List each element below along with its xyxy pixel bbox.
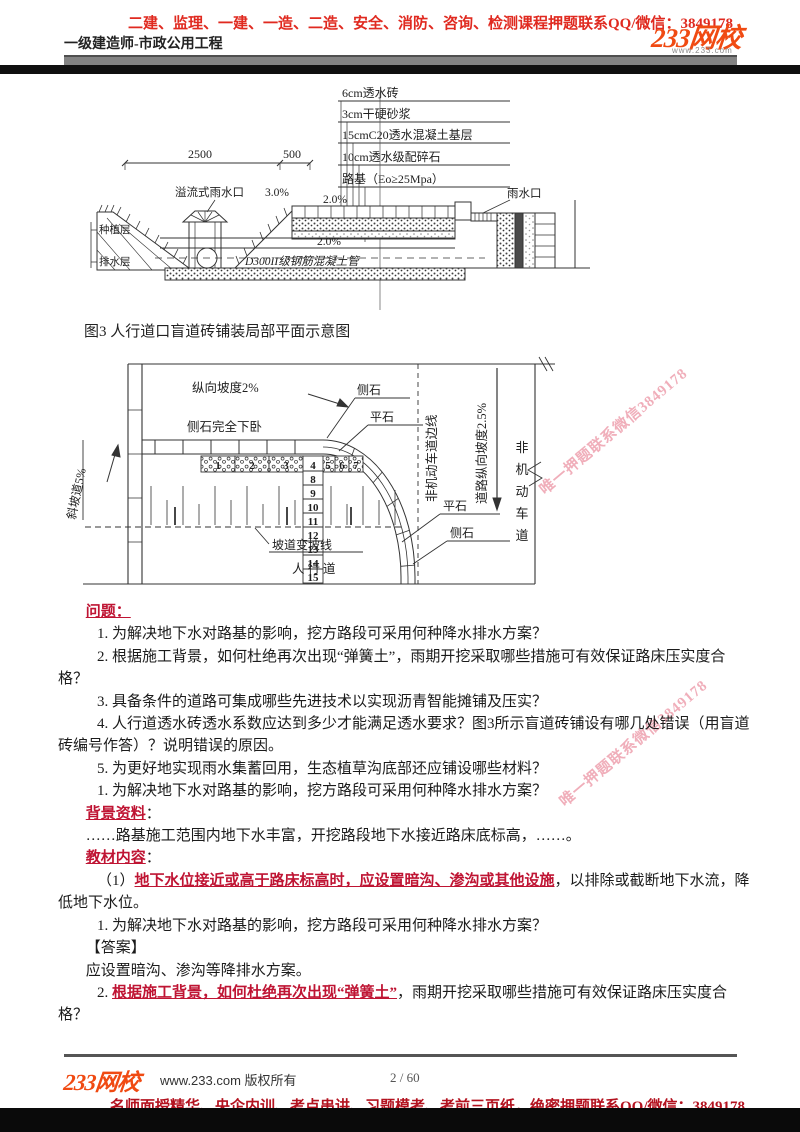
slope-change-label: 坡道变坡线	[272, 537, 332, 552]
curb-top-label: 侧石	[357, 383, 381, 397]
text-run: 低地下水位。	[58, 895, 148, 911]
bike-lane-label: 非机动车道	[515, 440, 528, 543]
flat-bottom-label: 平石	[443, 499, 467, 513]
brick-number: 10	[308, 502, 320, 514]
right-curb-assembly	[455, 200, 590, 268]
text-run: （1）	[97, 873, 135, 889]
text-run: 3. 具备条件的道路可集成哪些先进技术以实现沥青智能摊铺及压实？	[97, 694, 547, 710]
footer-divider	[64, 1054, 737, 1057]
brick-number: 5	[325, 460, 331, 472]
text-run: 格？	[58, 671, 88, 687]
header-promo-text: 二建、监理、一建、一造、二造、安全、消防、咨询、检测课程押题联系QQ/微信：38…	[128, 12, 733, 33]
text-run: 5. 为更好地实现雨水集蓄回用，生态植草沟底部还应铺设哪些材料？	[97, 761, 547, 777]
content-paragraphs: 问题： 1. 为解决地下水对路基的影响，挖方路段可采用何种降水排水方案？2. 根…	[58, 601, 748, 1027]
paragraph: 5. 为更好地实现雨水集蓄回用，生态植草沟底部还应铺设哪些材料？	[58, 758, 748, 780]
sidewalk-label: 人行道	[292, 562, 339, 576]
road-slope-label: 道路纵向坡度2.5%	[474, 403, 489, 504]
slope-2pct-lower: 2.0%	[317, 236, 341, 248]
text-run: 4. 人行道透水砖透水系数应达到多少才能满足透水要求？图3所示盲道砖铺设有哪几处…	[97, 716, 750, 732]
plan-view-diagram: 1 2 3 4 5 6 7 8 9 10 11 12 13 14 15 坡道变坡…	[55, 352, 595, 602]
layer-callout-labels: 6cm透水砖 3cm干硬砂浆 15cmC20透水混凝土基层 10cm透水级配碎石…	[342, 85, 473, 186]
layer-label: 6cm透水砖	[342, 85, 399, 100]
page-number: 2 / 60	[390, 1070, 420, 1086]
cross-section-svg: 6cm透水砖 3cm干硬砂浆 15cmC20透水混凝土基层 10cm透水级配碎石…	[55, 82, 735, 322]
slope-3pct-label: 3.0%	[265, 187, 289, 199]
dim-2500: 2500	[188, 147, 212, 161]
paragraph: 背景资料：	[58, 803, 748, 825]
emphasized-text-run: 问题：	[86, 604, 131, 620]
text-run: ：	[146, 850, 161, 866]
emphasized-text-run: 教材内容	[86, 850, 146, 866]
text-run: ……路基施工范围内地下水丰富，开挖路段地下水接近路床底标高，……。	[86, 828, 581, 844]
text-run: 1. 为解决地下水对路基的影响，挖方路段可采用何种降水排水方案？	[97, 783, 547, 799]
drain-layer-label: 排水层	[99, 255, 131, 268]
brick-number: 4	[310, 460, 316, 472]
brick-number: 11	[308, 516, 318, 528]
paragraph: 格？	[58, 668, 748, 690]
flat-top-label: 平石	[370, 410, 394, 424]
footer-copyright: www.233.com 版权所有	[160, 1070, 297, 1089]
curb-bottom-label: 侧石	[450, 526, 474, 540]
cross-section-diagram: 6cm透水砖 3cm干硬砂浆 15cmC20透水混凝土基层 10cm透水级配碎石…	[55, 82, 735, 322]
paragraph: 【答案】	[58, 937, 748, 959]
header-divider-bar	[64, 55, 737, 65]
text-run: ：	[146, 806, 161, 822]
brick-number: 8	[310, 474, 316, 486]
pipe-label: D300II级钢筋混凝土管	[244, 255, 360, 268]
layer-label: 路基（Eo≥25Mpa）	[342, 171, 444, 186]
paragraph: 2. 根据施工背景，如何杜绝再次出现“弹簧土”，雨期开挖采取哪些措施可有效保证路…	[58, 982, 748, 1004]
text-run: 格？	[58, 1007, 88, 1023]
paragraph: 低地下水位。	[58, 892, 748, 914]
figure-caption: 图3 人行道口盲道砖铺装局部平面示意图	[84, 320, 350, 341]
inlet-leader	[207, 200, 215, 212]
layer-label: 10cm透水级配碎石	[342, 149, 441, 164]
document-page: { "header": { "promo": "二建、监理、一建、一造、二造、安…	[0, 0, 800, 1132]
overflow-inlet-label: 溢流式雨水口	[175, 185, 244, 199]
paragraph: ……路基施工范围内地下水丰富，开挖路段地下水接近路床底标高，……。	[58, 825, 748, 847]
slope-arrow	[308, 394, 348, 407]
layer-label: 3cm干硬砂浆	[342, 106, 411, 121]
brick-number: 3	[283, 460, 289, 472]
paragraph: 应设置暗沟、渗沟等降排水方案。	[58, 960, 748, 982]
paragraph: 教材内容：	[58, 847, 748, 869]
paragraph: 2. 根据施工背景，如何杜绝再次出现“弹簧土”，雨期开挖采取哪些措施可有效保证路…	[58, 646, 748, 668]
text-run: 2.	[97, 985, 112, 1001]
brick-number: 6	[339, 460, 345, 472]
paragraph: 1. 为解决地下水对路基的影响，挖方路段可采用何种降水排水方案？	[58, 915, 748, 937]
emphasized-text-run: 背景资料	[86, 806, 146, 822]
text-run: 2. 根据施工背景，如何杜绝再次出现“弹簧土”，雨期开挖采取哪些措施可有效保证路…	[97, 649, 725, 665]
emphasized-text-run: 根据施工背景，如何杜绝再次出现“弹簧土”	[112, 985, 397, 1001]
slope-2pct-upper: 2.0%	[323, 194, 347, 206]
footer-logo: 233网校	[62, 1063, 141, 1097]
brick-number: 9	[310, 488, 316, 500]
brick-number: 7	[353, 460, 359, 472]
ramp-arrow	[107, 445, 120, 482]
rain-inlet-label: 雨水口	[507, 187, 542, 200]
layer-label: 15cmC20透水混凝土基层	[342, 127, 473, 142]
text-run: ，以排除或截断地下水流，降	[555, 873, 750, 889]
dim-500: 500	[283, 147, 301, 161]
emphasized-text-run: 地下水位接近或高于路床标高时，应设置暗沟、渗沟或其他设施	[135, 873, 555, 889]
brick-number: 2	[249, 460, 255, 472]
paragraph: 问题：	[58, 601, 748, 623]
overflow-inlet-structure	[183, 211, 227, 268]
course-subtitle: 一级建造师-市政公用工程	[64, 33, 223, 53]
planting-layer-label: 种植层	[99, 223, 131, 236]
longitudinal-slope-label: 纵向坡度2%	[192, 380, 259, 395]
paragraph: 1. 为解决地下水对路基的影响，挖方路段可采用何种降水排水方案？	[58, 623, 748, 645]
text-run: 1. 为解决地下水对路基的影响，挖方路段可采用何种降水排水方案？	[97, 626, 547, 642]
curb-bottom-leader	[413, 541, 510, 564]
text-run: 砖编号作答）？说明错误的原因。	[58, 738, 283, 754]
curb-sunken-label: 侧石完全下卧	[187, 419, 262, 434]
plan-view-svg: 1 2 3 4 5 6 7 8 9 10 11 12 13 14 15 坡道变坡…	[55, 352, 595, 602]
slope-ticks	[85, 486, 403, 527]
ramp-label: 斜坡道5%	[64, 467, 89, 521]
paragraph: 4. 人行道透水砖透水系数应达到多少才能满足透水要求？图3所示盲道砖铺设有哪几处…	[58, 713, 748, 735]
dimension-lines	[122, 160, 313, 170]
paragraph: （1）地下水位接近或高于路床标高时，应设置暗沟、渗沟或其他设施，以排除或截断地下…	[58, 870, 748, 892]
site-logo-url: www.233.com	[672, 46, 733, 55]
text-run: 【答案】	[86, 940, 146, 956]
tactile-bricks	[201, 456, 363, 583]
header-black-band	[0, 65, 800, 74]
paragraph: 格？	[58, 1004, 748, 1026]
bike-edge-label: 非机动车道边线	[424, 414, 439, 502]
brick-number: 1	[215, 460, 221, 472]
pavement-layers	[292, 206, 455, 239]
paragraph: 3. 具备条件的道路可集成哪些先进技术以实现沥青智能摊铺及压实？	[58, 691, 748, 713]
footer-black-band	[0, 1108, 800, 1132]
paragraph: 砖编号作答）？说明错误的原因。	[58, 735, 748, 757]
paragraph: 1. 为解决地下水对路基的影响，挖方路段可采用何种降水排水方案？	[58, 780, 748, 802]
text-run: 应设置暗沟、渗沟等降排水方案。	[86, 963, 311, 979]
text-run: ，雨期开挖采取哪些措施可有效保证路床压实度合	[397, 985, 727, 1001]
road-slope-arrow	[493, 368, 501, 510]
text-run: 1. 为解决地下水对路基的影响，挖方路段可采用何种降水排水方案？	[97, 918, 547, 934]
